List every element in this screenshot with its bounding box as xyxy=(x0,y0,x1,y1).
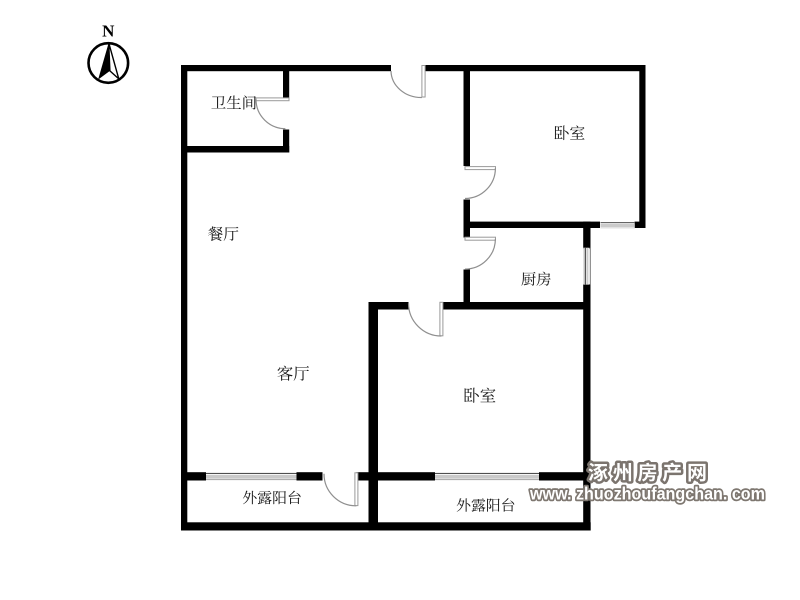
svg-text:www. zhuozhoufangchan. com: www. zhuozhoufangchan. com xyxy=(529,484,765,504)
svg-text:N: N xyxy=(102,22,115,41)
